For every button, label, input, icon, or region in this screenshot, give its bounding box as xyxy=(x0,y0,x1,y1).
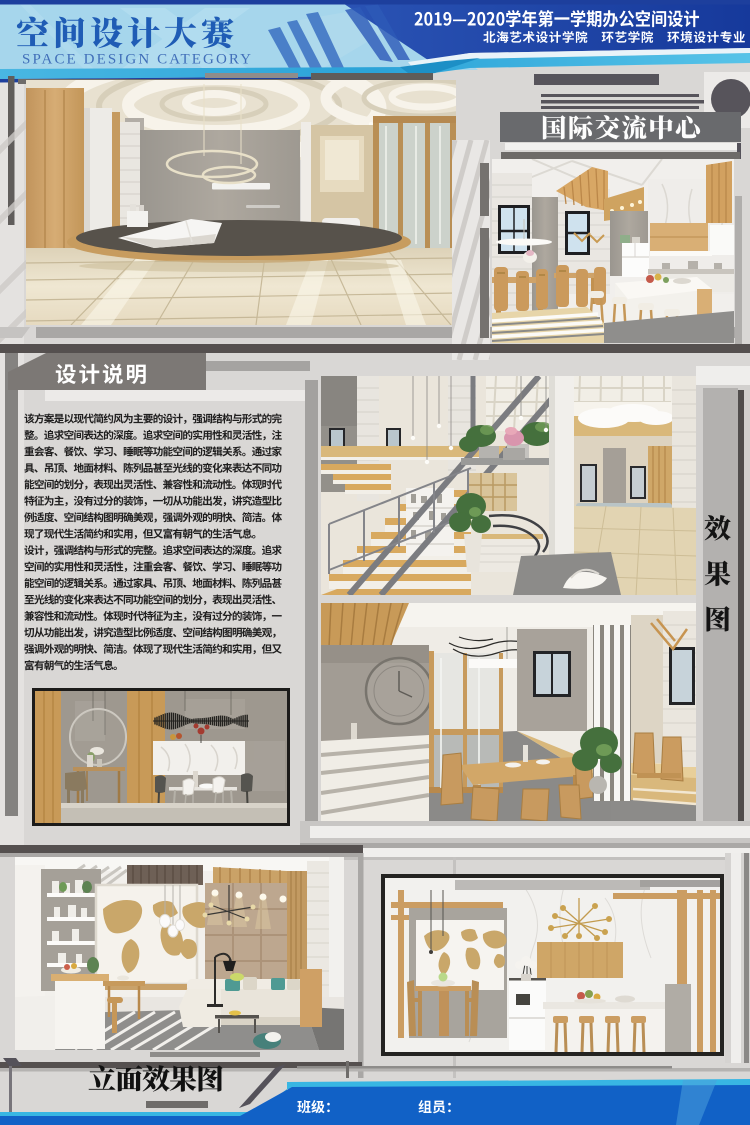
svg-text:SPACE DESIGN CATEGORY: SPACE DESIGN CATEGORY xyxy=(22,52,253,68)
